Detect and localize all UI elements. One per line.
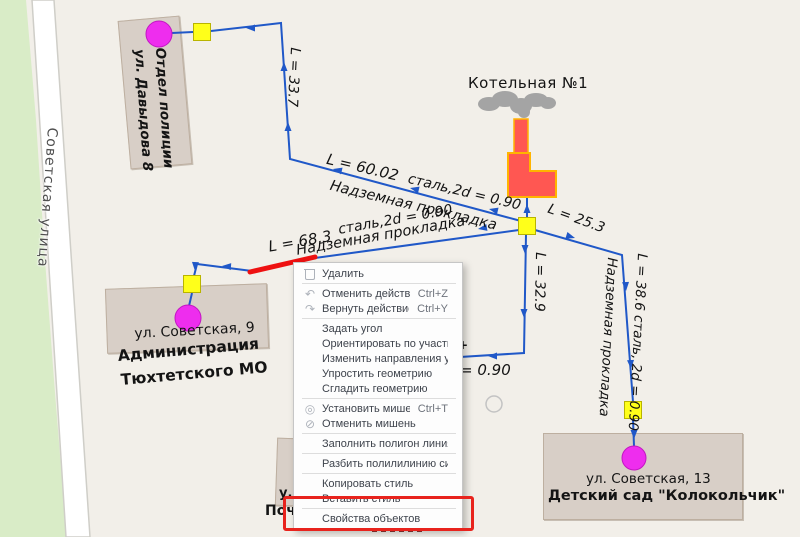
menu-item-shortcut: Ctrl+T bbox=[418, 403, 448, 415]
menu-item-0[interactable]: Удалить bbox=[294, 266, 462, 281]
node-square[interactable] bbox=[184, 276, 201, 293]
target-marker-circle bbox=[486, 396, 502, 412]
boiler-building bbox=[508, 153, 556, 197]
pipe-length-label: L = 33.7 bbox=[284, 47, 303, 107]
menu-item-16[interactable]: Разбить полилилинию символами bbox=[294, 456, 462, 471]
consumer-node[interactable] bbox=[622, 446, 646, 470]
boiler-chimney bbox=[514, 119, 528, 155]
menu-item-label: Копировать стиль bbox=[322, 478, 448, 490]
boiler-house[interactable] bbox=[478, 91, 556, 197]
trash-icon bbox=[300, 267, 320, 280]
node-square[interactable] bbox=[519, 218, 536, 235]
menu-separator bbox=[302, 283, 456, 284]
menu-item-label: Изменить направления участков bbox=[322, 353, 448, 365]
menu-item-label: Свойства объектов bbox=[322, 513, 448, 525]
boiler-label: Котельная №1 bbox=[468, 74, 588, 92]
redo-icon: ↷ bbox=[300, 302, 320, 316]
map-canvas[interactable]: Советская улица Отдел полиции ул. Давыдо… bbox=[0, 0, 800, 537]
menu-separator bbox=[302, 398, 456, 399]
post-label-fragment1: у. bbox=[279, 486, 292, 501]
menu-item-shortcut: Ctrl+Z bbox=[418, 288, 448, 300]
menu-item-3[interactable]: ↷Вернуть действиеCtrl+Y bbox=[294, 301, 462, 316]
pipe-spec-label-partial: = 0.90 bbox=[460, 361, 511, 379]
menu-separator bbox=[302, 433, 456, 434]
context-menu[interactable]: Удалить↶Отменить действиеCtrl+Z↷Вернуть … bbox=[293, 262, 463, 530]
consumer-node[interactable] bbox=[146, 21, 172, 47]
smoke-cloud bbox=[478, 91, 556, 118]
menu-item-label: Вернуть действие bbox=[322, 303, 409, 315]
pipe-length-label: L = 32.9 bbox=[531, 252, 548, 312]
menu-item-label: Разбить полилилинию символами bbox=[322, 458, 448, 470]
target-clear-icon: ⊘ bbox=[300, 417, 320, 431]
kindergarten-name-label: Детский сад "Колокольчик" bbox=[548, 488, 785, 504]
menu-separator bbox=[302, 318, 456, 319]
police-label: Отдел полиции ул. Давыдова 8 bbox=[128, 47, 178, 172]
menu-separator bbox=[302, 473, 456, 474]
menu-item-8[interactable]: Упростить геометрию bbox=[294, 366, 462, 381]
node-square[interactable] bbox=[194, 24, 211, 41]
menu-item-label: Установить мишень bbox=[322, 403, 410, 415]
menu-item-11[interactable]: ◎Установить мишеньCtrl+T bbox=[294, 401, 462, 416]
post-label-fragment2: Поч bbox=[265, 503, 296, 519]
menu-item-label: Отменить мишень bbox=[322, 418, 448, 430]
menu-item-14[interactable]: Заполнить полигон линиями bbox=[294, 436, 462, 451]
menu-item-label: Ориентировать по участкам bbox=[322, 338, 448, 350]
menu-item-12[interactable]: ⊘Отменить мишень bbox=[294, 416, 462, 431]
menu-separator bbox=[302, 508, 456, 509]
menu-separator bbox=[302, 453, 456, 454]
menu-item-21[interactable]: Свойства объектов bbox=[294, 511, 462, 526]
pipe-police-node-link[interactable] bbox=[172, 32, 193, 33]
menu-item-5[interactable]: Задать угол bbox=[294, 321, 462, 336]
menu-item-19[interactable]: Вставить стиль bbox=[294, 491, 462, 506]
pipe-to-kindergarten[interactable] bbox=[535, 230, 633, 402]
menu-item-6[interactable]: Ориентировать по участкам bbox=[294, 336, 462, 351]
menu-item-9[interactable]: Сгладить геометрию bbox=[294, 381, 462, 396]
menu-item-7[interactable]: Изменить направления участков bbox=[294, 351, 462, 366]
menu-item-label: Упростить геометрию bbox=[322, 368, 448, 380]
pipe-admin-node-link[interactable] bbox=[189, 293, 192, 306]
menu-item-label: Задать угол bbox=[322, 323, 448, 335]
undo-icon: ↶ bbox=[300, 287, 320, 301]
menu-item-label: Сгладить геометрию bbox=[322, 383, 448, 395]
menu-item-label: Отменить действие bbox=[322, 288, 410, 300]
menu-item-label: Вставить стиль bbox=[322, 493, 448, 505]
target-set-icon: ◎ bbox=[300, 402, 320, 416]
menu-item-18[interactable]: Копировать стиль bbox=[294, 476, 462, 491]
menu-item-shortcut: Ctrl+Y bbox=[417, 303, 448, 315]
kindergarten-address-label: ул. Советская, 13 bbox=[586, 471, 711, 487]
menu-item-label: Удалить bbox=[322, 268, 448, 280]
pipe-down-from-boiler[interactable] bbox=[460, 234, 526, 357]
menu-item-2[interactable]: ↶Отменить действиеCtrl+Z bbox=[294, 286, 462, 301]
menu-item-label: Заполнить полигон линиями bbox=[322, 438, 448, 450]
